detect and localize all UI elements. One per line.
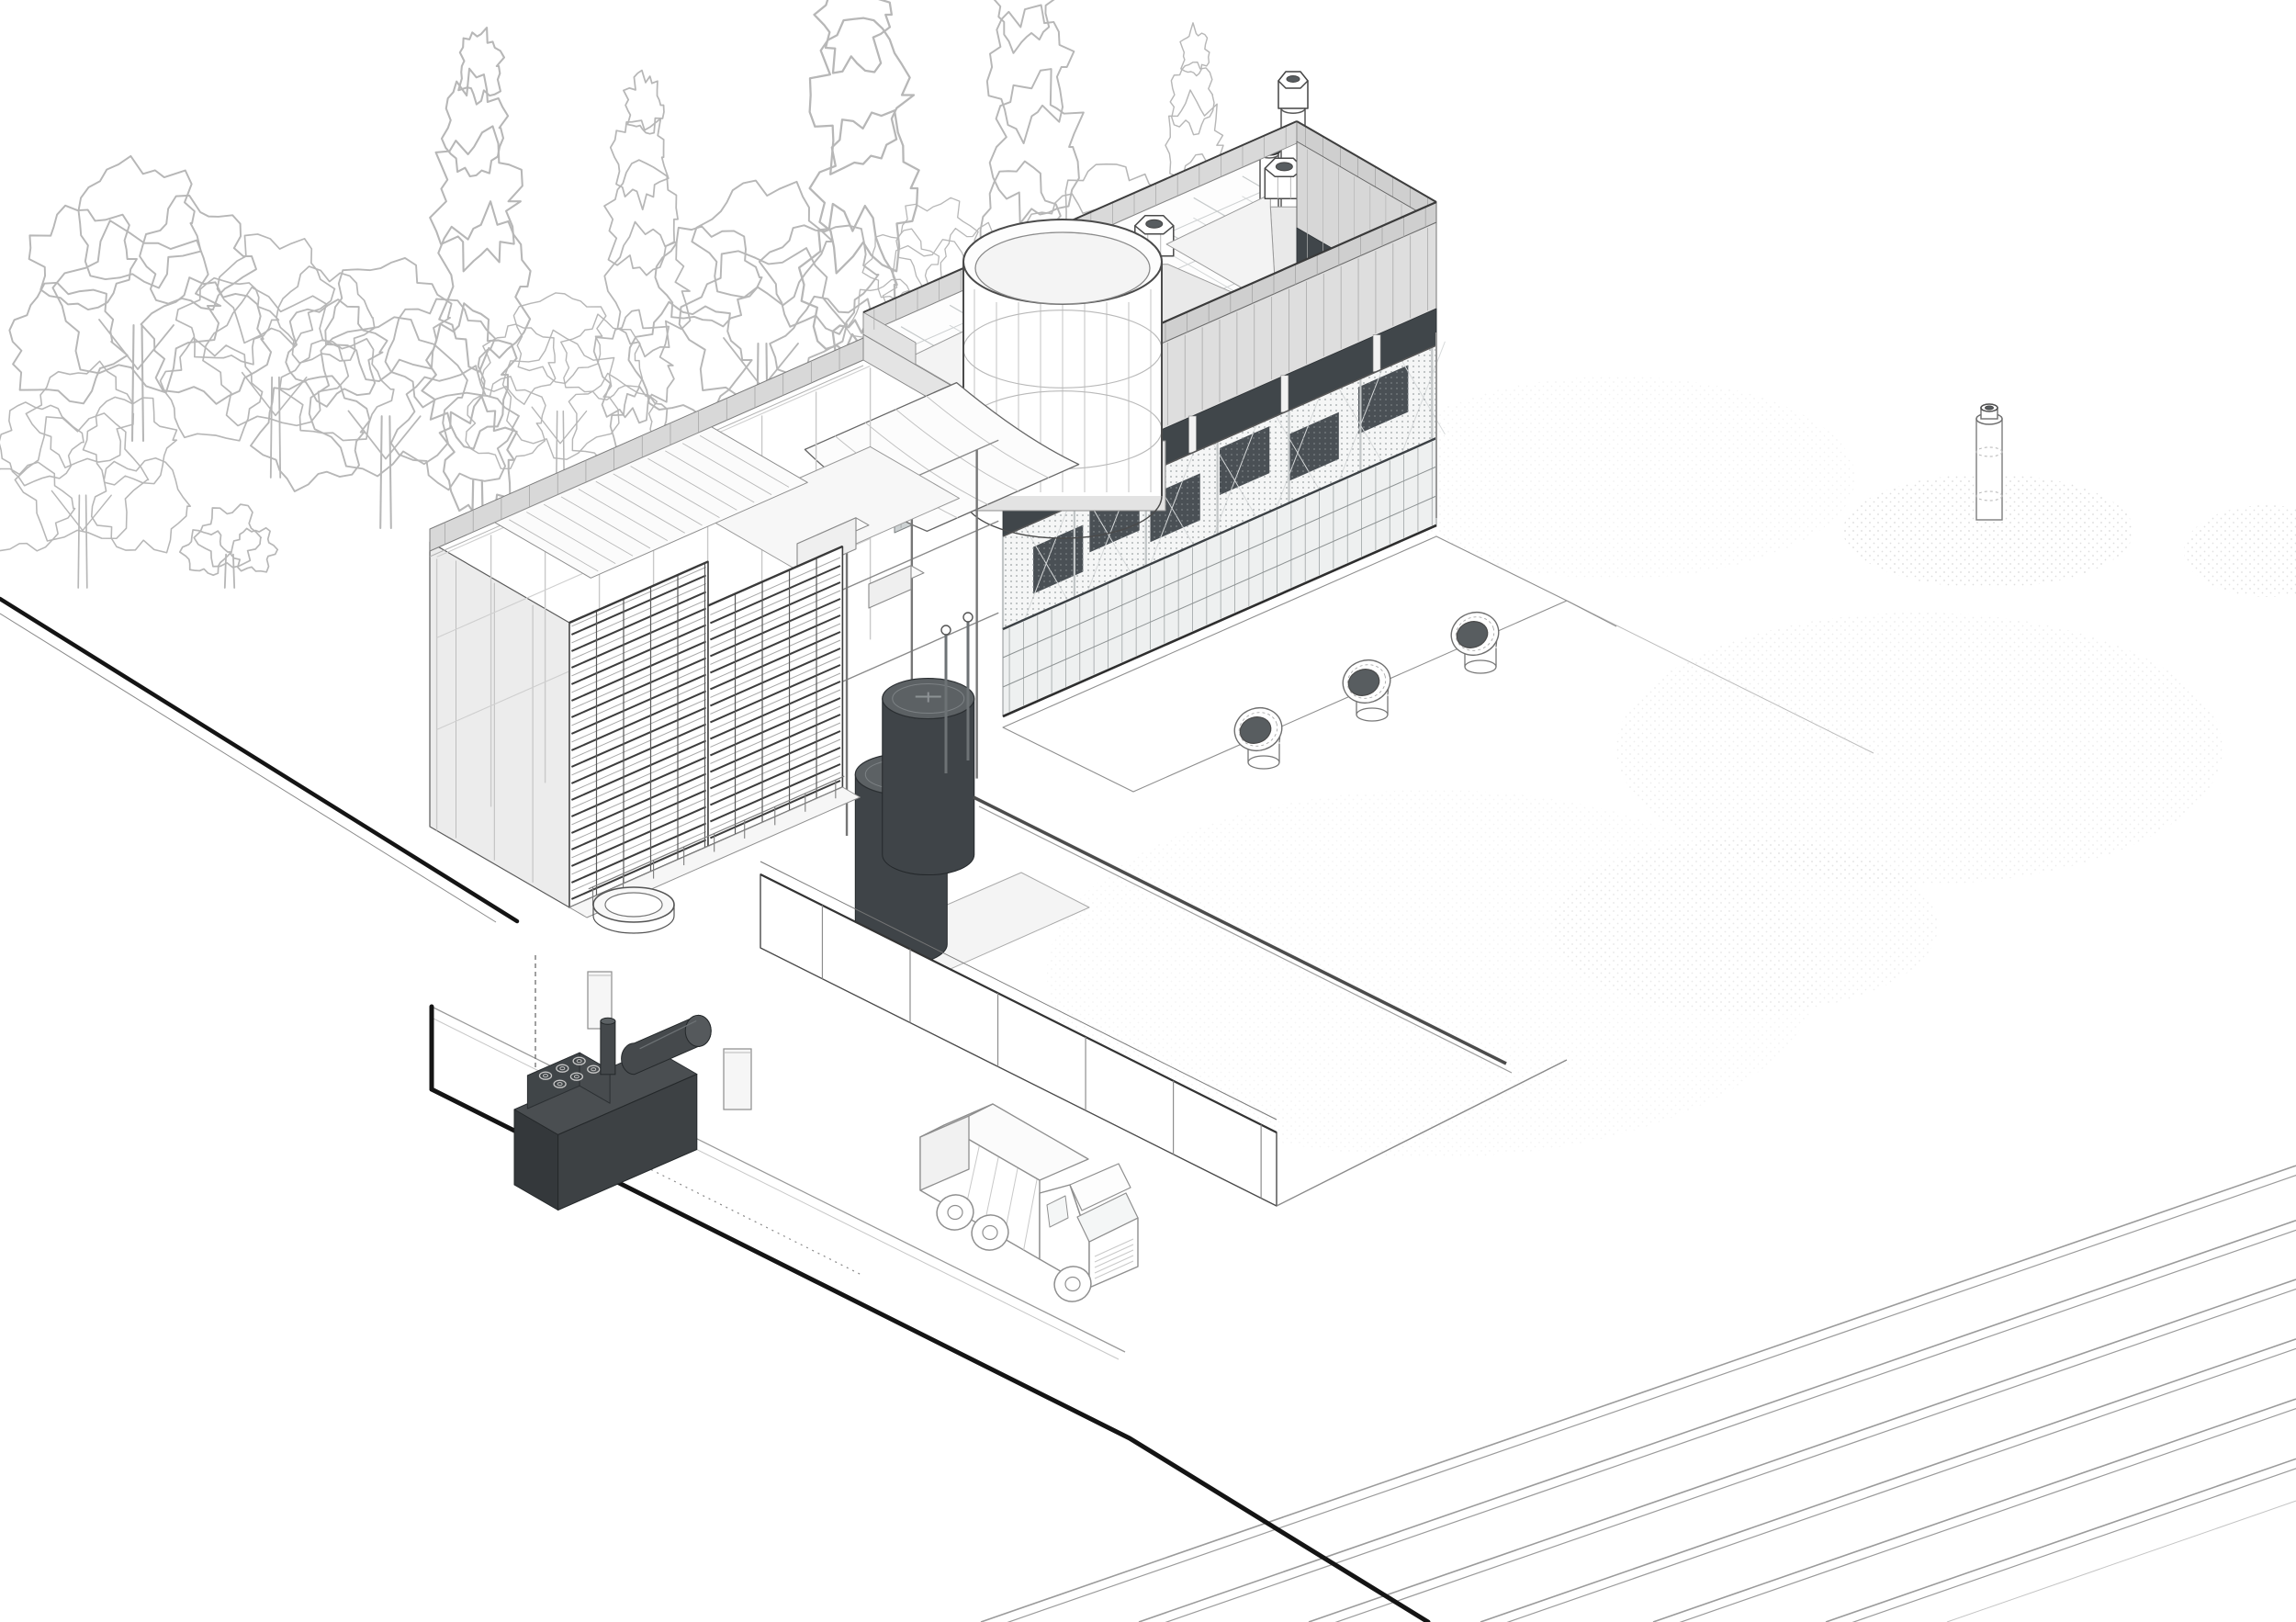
vent-pole [1976, 404, 2002, 520]
architectural-axonometric-scene [0, 0, 2296, 1622]
axonometric-drawing [0, 0, 2296, 1622]
digester-tank [883, 679, 974, 875]
foundation-pier [724, 1049, 751, 1109]
